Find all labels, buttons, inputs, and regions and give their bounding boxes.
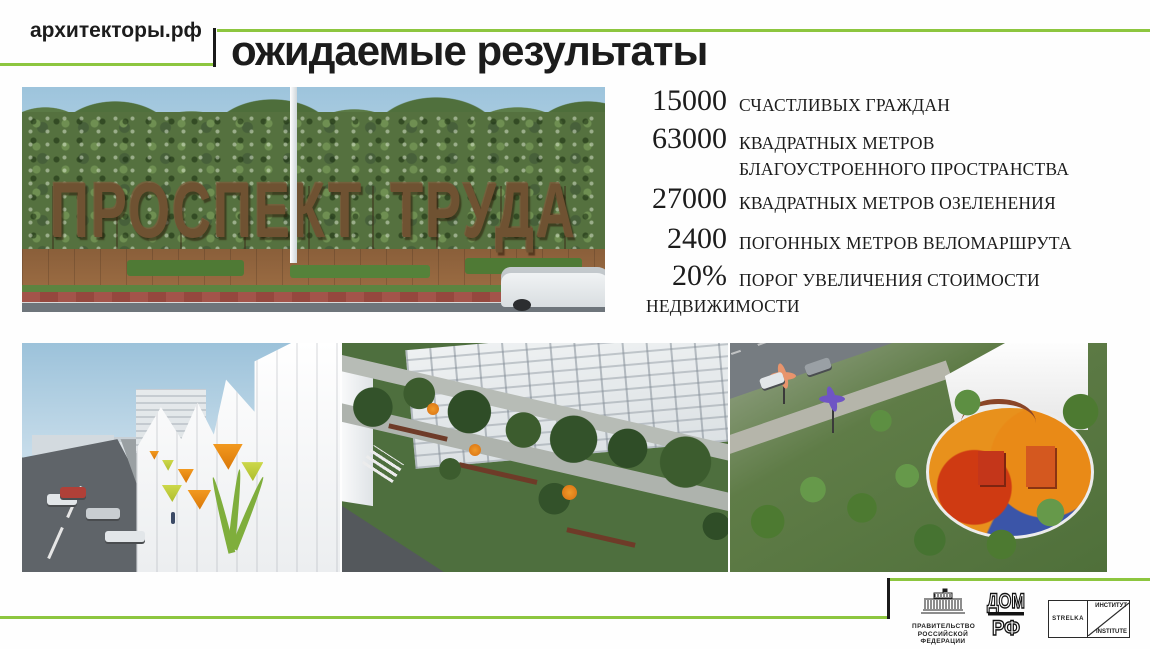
hero-grass-patch — [127, 260, 244, 276]
hero-grass-patch — [290, 265, 430, 279]
orange-sculpture — [427, 403, 439, 415]
stat-value: 27000 — [632, 182, 727, 216]
stat-row: 20% ПОРОГ УВЕЛИЧЕНИЯ СТОИМОСТИ — [632, 259, 1112, 293]
stat-value: 63000 — [632, 122, 727, 156]
domrf-logo: ДОМ РФ — [984, 590, 1028, 645]
person — [171, 512, 175, 524]
header-divider-line — [213, 28, 216, 67]
stats-list: 15000 СЧАСТЛИВЫХ ГРАЖДАН 63000 КВАДРАТНЫ… — [632, 84, 1112, 319]
domrf-top-text: ДОМ — [987, 590, 1025, 613]
render-strip — [22, 343, 1108, 572]
strelka-institute-en: INSTITUTE — [1096, 629, 1127, 635]
render-playground — [730, 343, 1107, 572]
car — [60, 487, 86, 498]
strelka-left-label: STRELKA — [1049, 601, 1088, 637]
render-prospekt-truda: ПРОСПЕКТ ТРУДА — [22, 87, 605, 312]
government-logo: ПРАВИТЕЛЬСТВО РОССИЙСКОЙ ФЕДЕРАЦИИ — [912, 588, 974, 646]
hero-light-pole — [290, 87, 297, 263]
stat-value: 2400 — [632, 222, 727, 256]
render-linear-park — [342, 343, 728, 572]
stat-value: 20% — [632, 259, 727, 293]
footer-accent-line-right — [890, 578, 1150, 581]
stat-row: 27000 КВАДРАТНЫХ МЕТРОВ ОЗЕЛЕНЕНИЯ — [632, 182, 1112, 216]
strelka-right-cell: ИНСТИТУТ INSTITUTE — [1088, 601, 1129, 637]
stat-label: КВАДРАТНЫХ МЕТРОВ ОЗЕЛЕНЕНИЯ — [739, 182, 1056, 216]
car — [86, 508, 120, 519]
footer-accent-line-left — [0, 616, 888, 619]
brand-logo: архитекторы.рф — [30, 19, 202, 43]
stat-value: 15000 — [632, 84, 727, 118]
footer-divider-line — [887, 578, 890, 619]
strelka-institute-ru: ИНСТИТУТ — [1095, 603, 1127, 609]
hero-car — [501, 267, 605, 307]
orange-sculpture — [562, 485, 577, 500]
stat-label: СЧАСТЛИВЫХ ГРАЖДАН — [739, 84, 950, 118]
header-accent-line-left — [0, 63, 214, 66]
pinwheel-sculpture-purple — [817, 384, 847, 414]
stat-row: 63000 КВАДРАТНЫХ МЕТРОВ БЛАГОУСТРОЕННОГО… — [632, 122, 1112, 182]
domrf-logo-icon: ДОМ РФ — [984, 590, 1028, 640]
render-street-view — [22, 343, 340, 572]
car-wheel — [513, 299, 531, 311]
hero-sign-text: ПРОСПЕКТ ТРУДА — [22, 172, 605, 250]
car — [105, 531, 145, 542]
presentation-slide: архитекторы.рф ожидаемые результаты ПРОС… — [0, 0, 1150, 649]
stat-label: ПОРОГ УВЕЛИЧЕНИЯ СТОИМОСТИ — [739, 259, 1040, 293]
park-trees — [342, 343, 728, 572]
stat-label: ПОГОННЫХ МЕТРОВ ВЕЛОМАРШРУТА — [739, 222, 1072, 256]
stat-row: 2400 ПОГОННЫХ МЕТРОВ ВЕЛОМАРШРУТА — [632, 222, 1112, 256]
government-building-icon — [919, 588, 967, 616]
domrf-bottom-text: РФ — [992, 617, 1020, 640]
stat-label-overflow: НЕДВИЖИМОСТИ — [646, 293, 1112, 319]
strelka-logo: STRELKA ИНСТИТУТ INSTITUTE — [1048, 600, 1130, 638]
page-title: ожидаемые результаты — [231, 30, 707, 72]
government-logo-text: ПРАВИТЕЛЬСТВО РОССИЙСКОЙ ФЕДЕРАЦИИ — [912, 623, 974, 646]
stat-label: КВАДРАТНЫХ МЕТРОВ БЛАГОУСТРОЕННОГО ПРОСТ… — [739, 122, 1069, 182]
stat-row: 15000 СЧАСТЛИВЫХ ГРАЖДАН — [632, 84, 1112, 118]
